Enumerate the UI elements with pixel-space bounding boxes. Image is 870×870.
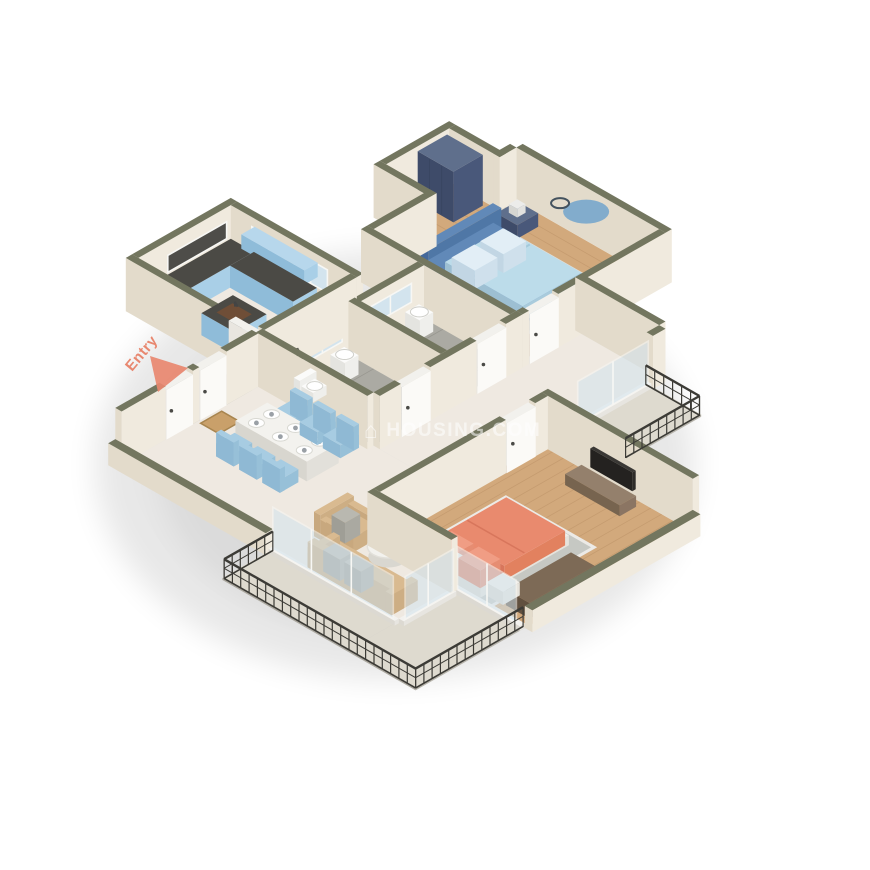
bathrooms-right-wall-c [374,380,401,449]
master-left-wall-a [493,144,516,211]
floor-plan-stage: Entry ⌂ HOUSING.COM [0,0,870,870]
lobby-right-stub-wall [647,325,666,389]
floor-plan-3d-render: Entry [0,0,870,870]
